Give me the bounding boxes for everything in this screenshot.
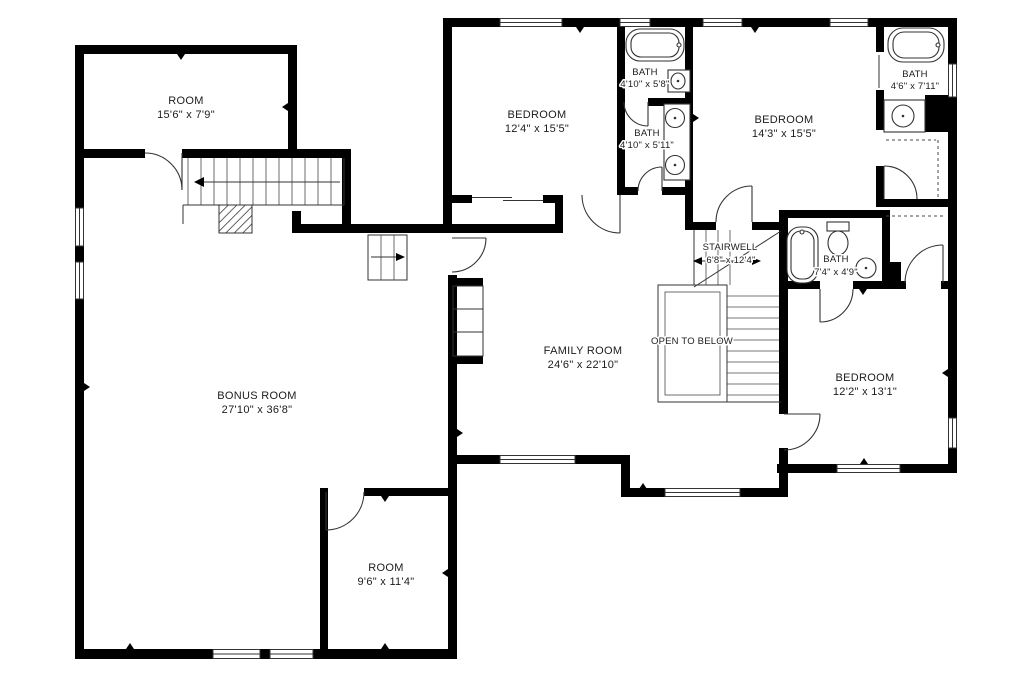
window <box>949 418 957 448</box>
window <box>213 650 260 659</box>
door <box>820 289 853 322</box>
room-dims: 27'10" x 36'8" <box>222 404 293 416</box>
window <box>76 262 84 299</box>
built-in-shelves <box>453 286 483 356</box>
room-label: STAIRWELL <box>703 242 758 253</box>
closet-door <box>905 245 943 283</box>
stairs-upper-left <box>183 158 344 233</box>
window <box>703 19 742 27</box>
room-dims: 15'6" x 7'9" <box>157 109 215 121</box>
room-dims: 24'6" x 22'10" <box>548 359 619 371</box>
window <box>830 19 868 27</box>
window <box>270 650 313 659</box>
open-to-below-label: OPEN TO BELOW <box>651 336 733 347</box>
window <box>837 465 900 473</box>
toilet <box>827 222 849 255</box>
door <box>145 153 182 190</box>
closet-slider <box>472 195 543 203</box>
room-label: BEDROOM <box>508 109 567 121</box>
room-dims: 4'10" x 5'8" <box>620 79 669 90</box>
room-dims: 6'8" x 12'4" <box>706 255 755 266</box>
door <box>624 102 648 126</box>
floor-plan-canvas: ROOM 15'6" x 7'9" BEDROOM 12'4" x 15'5" … <box>0 0 1024 683</box>
window <box>665 489 740 497</box>
window <box>500 456 575 464</box>
room-dims: 9'6" x 11'4" <box>358 576 415 588</box>
sink <box>856 258 876 278</box>
stairs-mini-to-family-room <box>368 235 407 280</box>
room-label: BATH <box>634 128 659 139</box>
labels: ROOM 15'6" x 7'9" BEDROOM 12'4" x 15'5" … <box>157 67 939 588</box>
room-dims: 4'10" x 5'11" <box>620 140 674 151</box>
window <box>620 19 650 27</box>
door <box>452 238 486 272</box>
chimney-chase <box>219 205 252 233</box>
room-label: BONUS ROOM <box>217 390 296 402</box>
room-dims: 14'3" x 15'5" <box>752 128 816 140</box>
room-label: ROOM <box>368 562 403 574</box>
room-dims: 7'4" x 4'9" <box>814 267 858 278</box>
closet-door <box>884 166 917 199</box>
window <box>500 19 562 27</box>
room-label: BEDROOM <box>755 114 814 126</box>
window <box>76 208 84 246</box>
vanity-sink <box>884 100 925 132</box>
room-label: BATH <box>823 254 848 265</box>
bathtub <box>888 28 944 62</box>
room-dims: 4'6" x 7'11" <box>891 81 940 92</box>
door <box>582 195 620 233</box>
floor-plan: ROOM 15'6" x 7'9" BEDROOM 12'4" x 15'5" … <box>0 0 1024 683</box>
pocket-door <box>876 52 884 90</box>
room-dims: 12'4" x 15'5" <box>505 123 569 135</box>
room-label: FAMILY ROOM <box>544 345 623 357</box>
room-label: BATH <box>902 69 927 80</box>
door <box>716 186 752 222</box>
door <box>784 414 820 450</box>
bathtub <box>626 29 684 61</box>
room-label: BATH <box>632 67 657 78</box>
fixtures <box>453 28 945 356</box>
sink <box>668 70 690 92</box>
room-label: BEDROOM <box>836 372 895 384</box>
door <box>326 492 364 530</box>
room-dims: 12'2" x 13'1" <box>833 386 897 398</box>
room-label: ROOM <box>168 95 203 107</box>
window <box>949 64 957 97</box>
